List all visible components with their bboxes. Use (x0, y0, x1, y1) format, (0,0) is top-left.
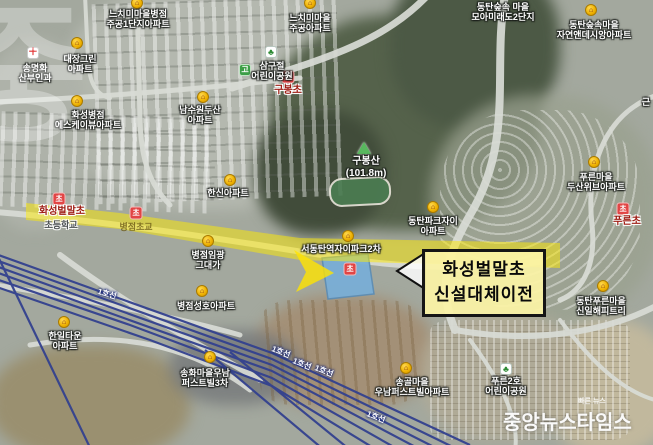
satellite-map: ⌂⌂＋⌂⌂⌂⌂⌂⌂⌂⌂⌂⌂⌂⌂⌂⌂♣고♣초초초초초느치미마을병점주공1단지아파트… (0, 0, 653, 445)
callout-pointer (397, 253, 425, 289)
watermark-text: 중앙뉴스타임스 (503, 406, 632, 435)
corner-watermark: 중 (0, 0, 88, 172)
callout-box: 화성벌말초 신설대체이전 (422, 249, 546, 317)
watermark-tagline: 빠른 뉴스 (578, 396, 606, 406)
callout-line2: 신설대체이전 (434, 283, 534, 308)
callout-pointer-layer (0, 0, 653, 445)
callout-line1: 화성벌말초 (442, 258, 525, 283)
